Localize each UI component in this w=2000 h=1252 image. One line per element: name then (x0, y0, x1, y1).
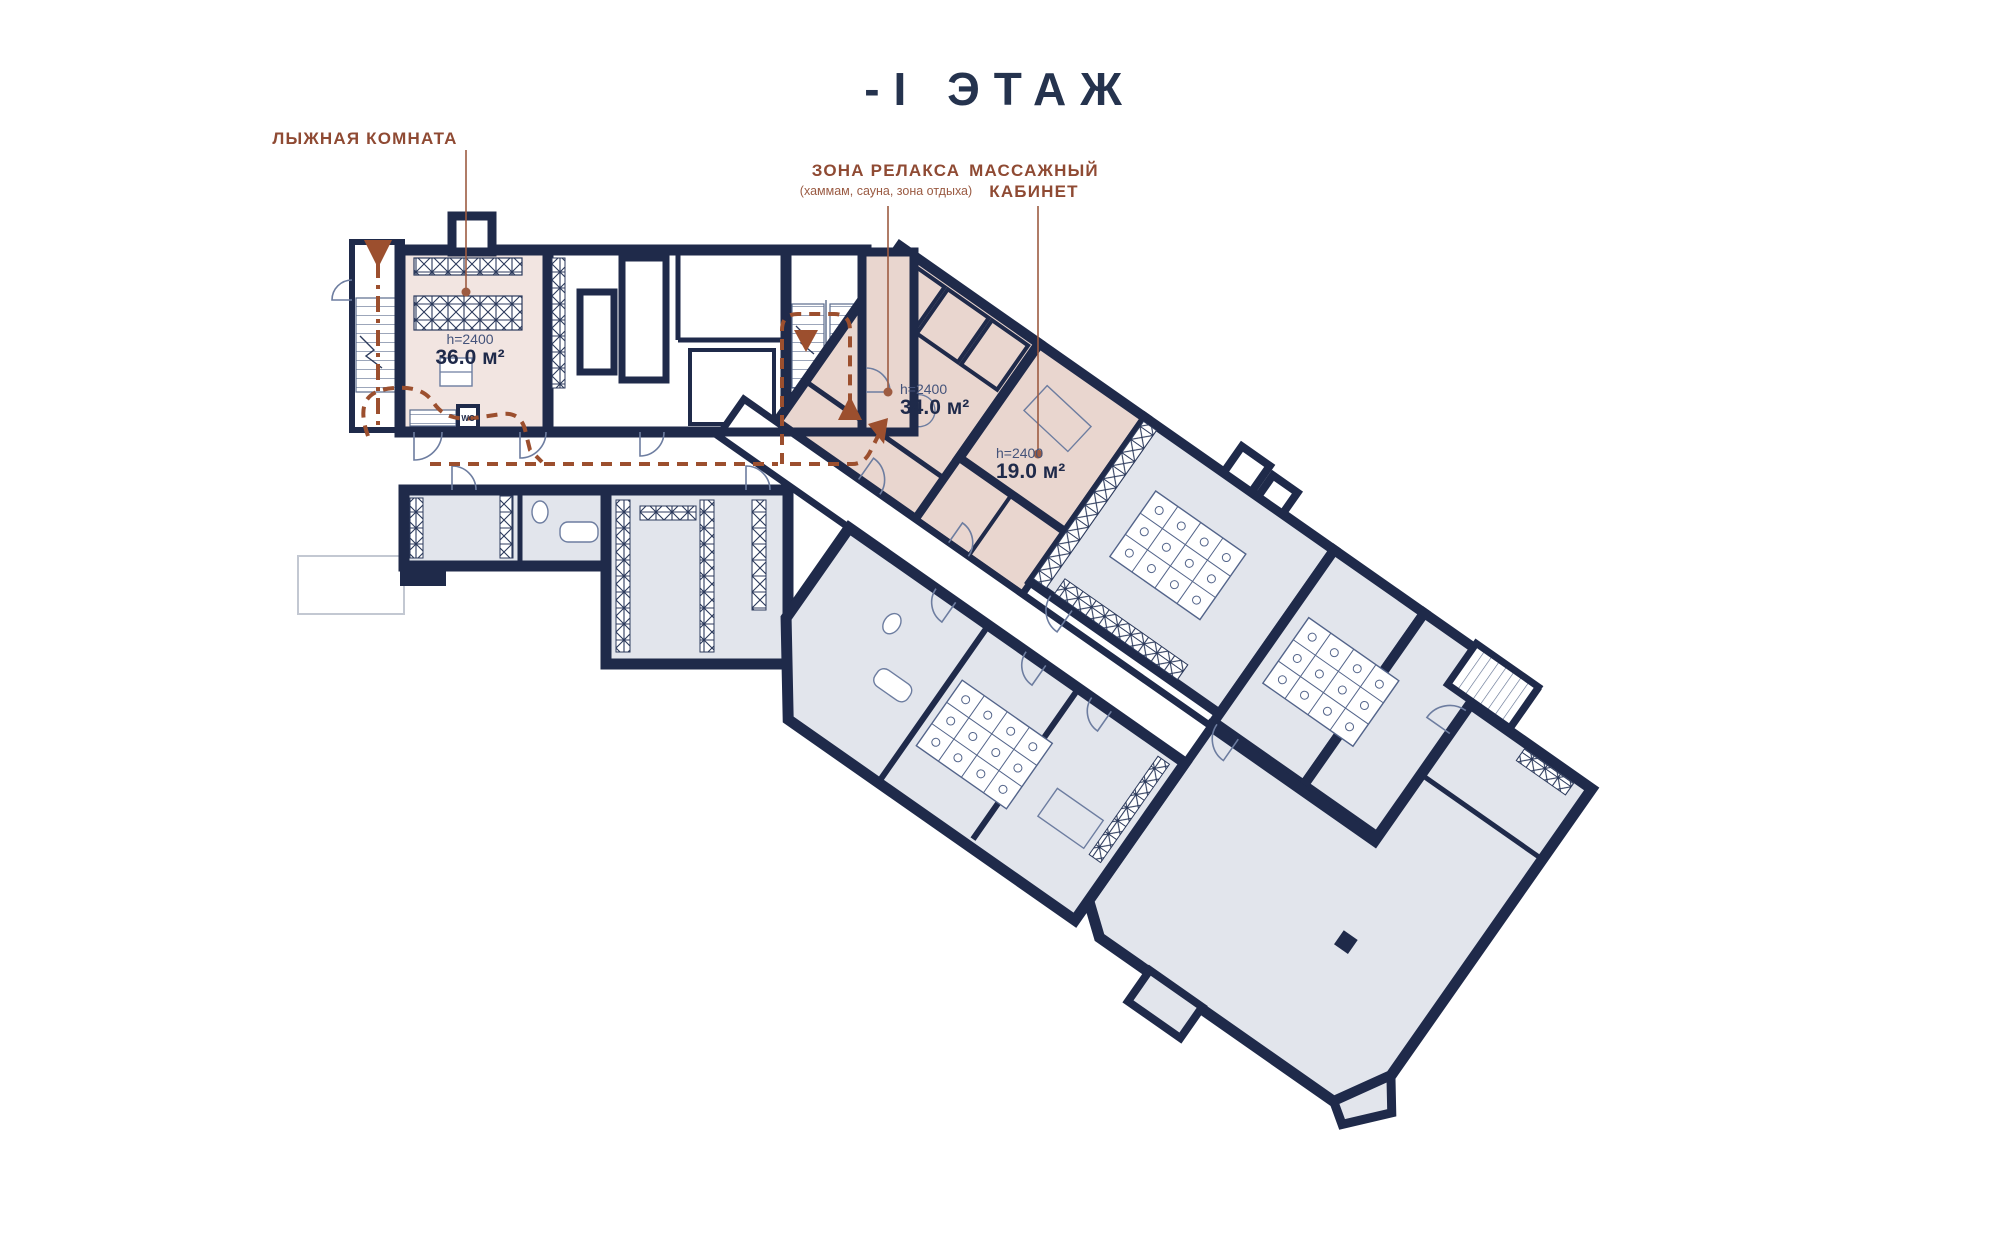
storage-rack (752, 500, 766, 610)
storage-rack (616, 500, 630, 652)
bench (410, 410, 456, 426)
floor-plan-drawing: h=2400 36.0 м² h=2400 34.0 м² h=2400 19.… (0, 0, 2000, 1252)
ski-rack (414, 258, 522, 275)
ski-room-area: 36.0 м² (435, 346, 504, 369)
storage-rooms-left (400, 490, 788, 664)
floor-plan-page: -I ЭТАЖ ЛЫЖНАЯ КОМНАТА ЗОНА РЕЛАКСА (хам… (0, 0, 2000, 1252)
relax-zone-area: 34.0 м² (900, 396, 969, 419)
bathtub (560, 522, 598, 542)
relax-zone-height: h=2400 (900, 381, 947, 397)
ski-room-height: h=2400 (446, 331, 493, 347)
terrace-outline (298, 556, 404, 614)
storage-rack (700, 500, 714, 652)
elevator-shaft (622, 258, 666, 380)
wall-stub (400, 566, 446, 586)
shelf-band (552, 258, 565, 388)
leader-dot (884, 388, 893, 397)
massage-height: h=2400 (996, 445, 1043, 461)
storage-rack (640, 506, 696, 520)
leader-dot (462, 288, 471, 297)
toilet (532, 501, 548, 523)
ski-rack (414, 296, 522, 330)
massage-area: 19.0 м² (996, 460, 1065, 483)
wc-label: WC (461, 414, 475, 423)
elevator-shaft (580, 292, 614, 372)
shaft-protrusion (452, 216, 492, 252)
